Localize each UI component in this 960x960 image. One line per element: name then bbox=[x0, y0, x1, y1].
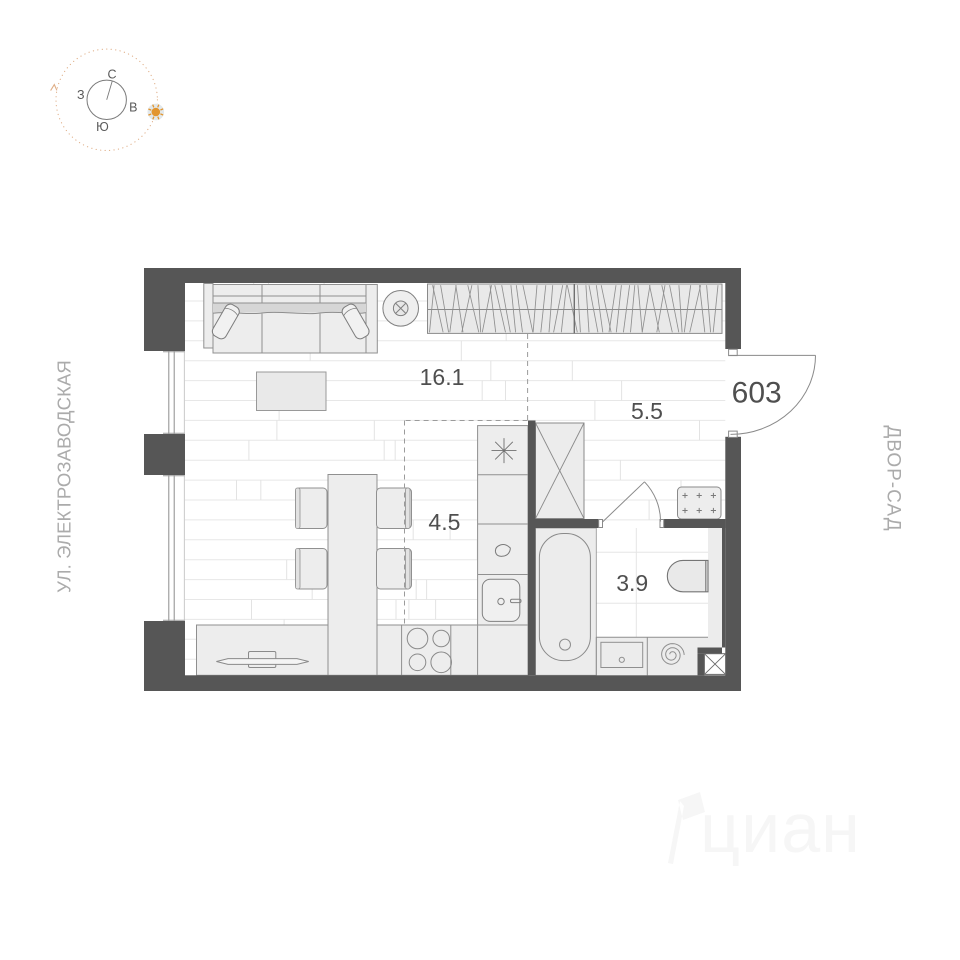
svg-text:УЛ. ЭЛЕКТРОЗАВОДСКАЯ: УЛ. ЭЛЕКТРОЗАВОДСКАЯ bbox=[54, 360, 75, 593]
svg-text:603: 603 bbox=[732, 377, 782, 410]
svg-text:С: С bbox=[107, 67, 116, 81]
svg-text:В: В bbox=[129, 101, 137, 115]
svg-text:5.5: 5.5 bbox=[631, 398, 663, 424]
svg-text:Ю: Ю bbox=[96, 120, 109, 134]
svg-text:3.9: 3.9 bbox=[616, 570, 648, 596]
svg-text:ДВОР-САД: ДВОР-САД bbox=[883, 425, 904, 531]
svg-text:циан: циан bbox=[700, 789, 861, 867]
svg-text:З: З bbox=[77, 88, 85, 102]
svg-text:4.5: 4.5 bbox=[428, 509, 460, 535]
svg-text:16.1: 16.1 bbox=[420, 364, 465, 390]
